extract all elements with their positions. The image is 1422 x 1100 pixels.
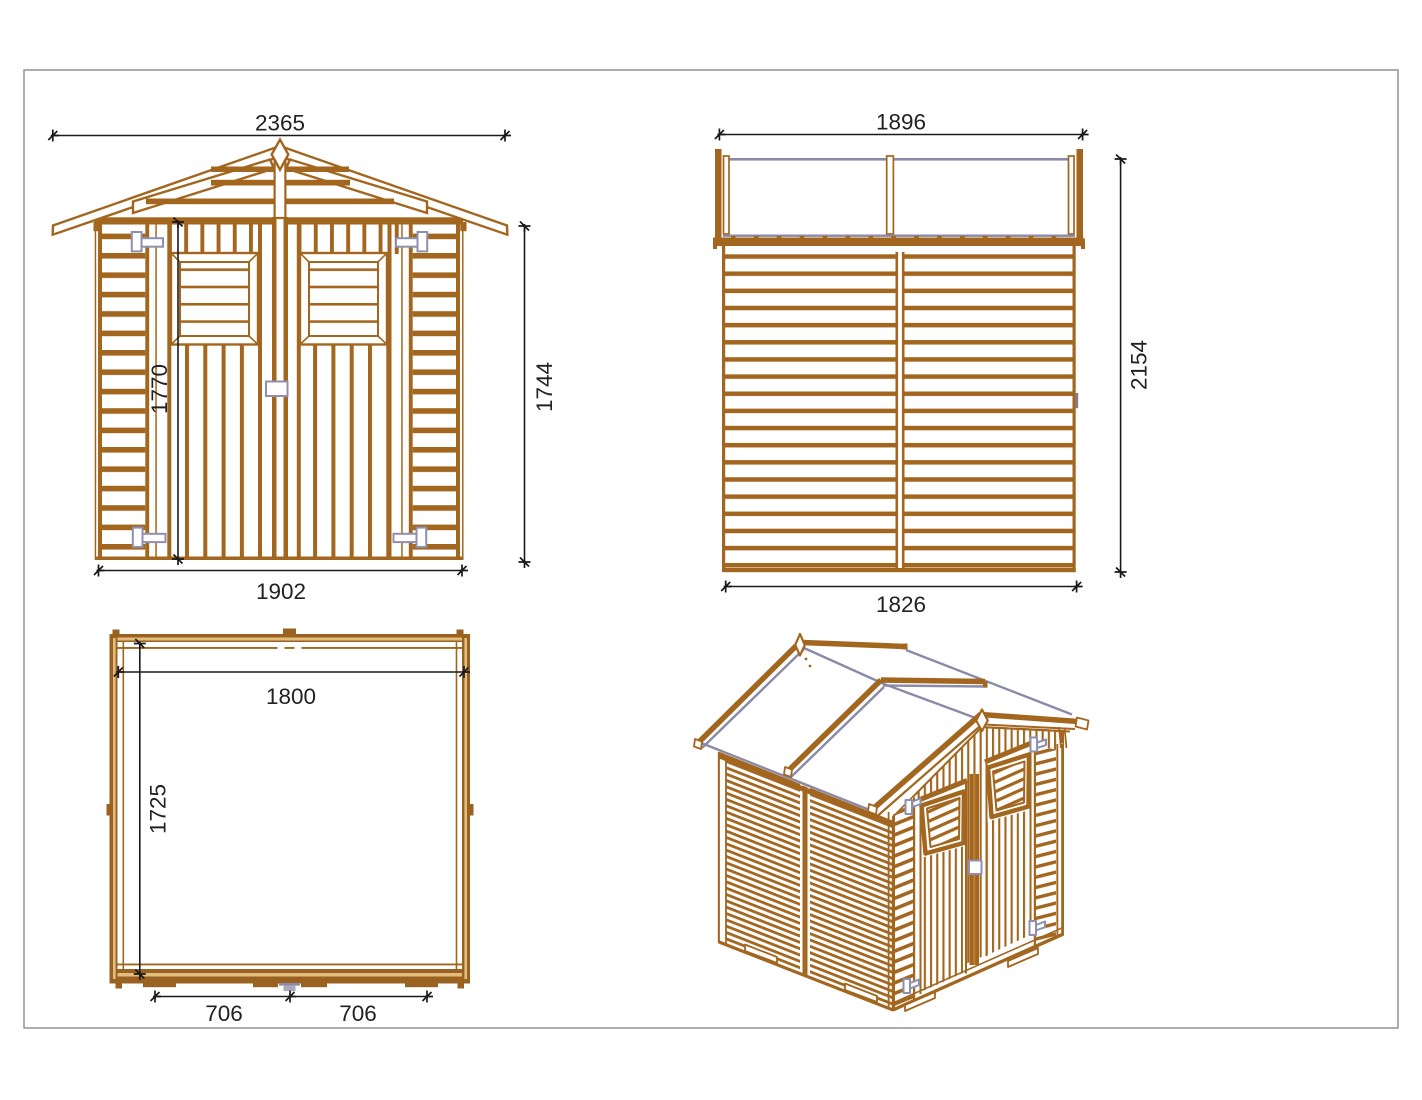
svg-text:2154: 2154: [1127, 340, 1152, 390]
svg-text:1902: 1902: [256, 579, 306, 604]
svg-text:706: 706: [339, 1001, 377, 1026]
svg-text:1725: 1725: [146, 784, 171, 834]
svg-text:1896: 1896: [876, 110, 926, 135]
svg-text:1800: 1800: [266, 684, 316, 709]
svg-text:1770: 1770: [147, 364, 172, 414]
svg-text:706: 706: [205, 1001, 243, 1026]
svg-text:1826: 1826: [876, 592, 926, 617]
svg-text:1744: 1744: [532, 362, 557, 412]
svg-text:2365: 2365: [255, 111, 305, 136]
